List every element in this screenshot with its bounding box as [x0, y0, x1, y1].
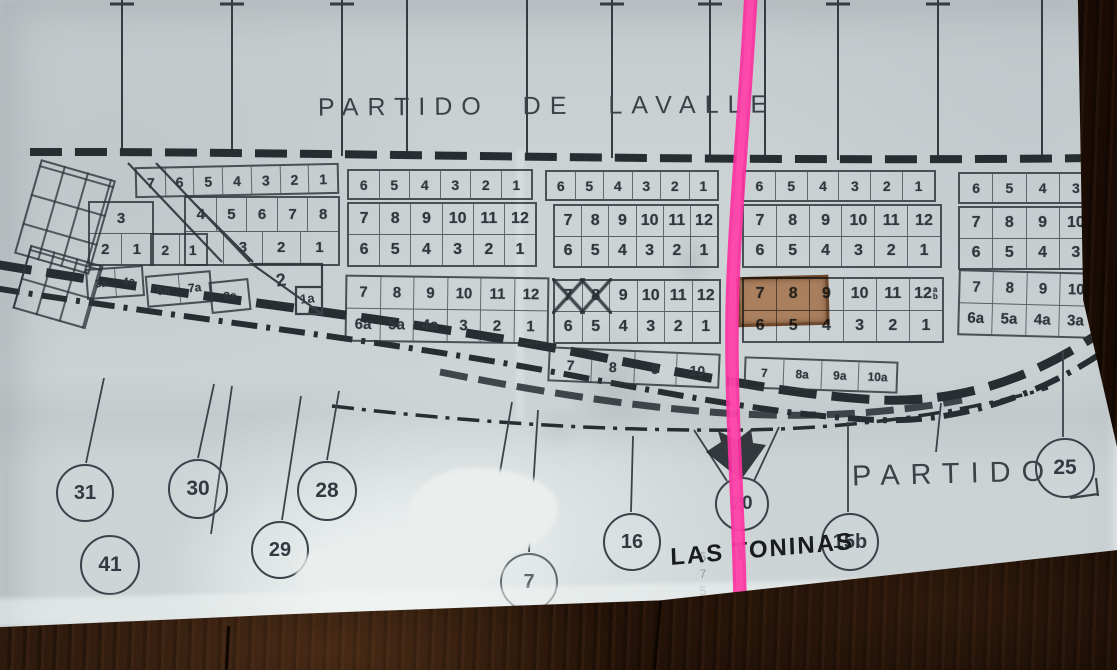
photo-of-cadastral-map: 765432165432165432165432165433212145678·… — [0, 0, 1117, 670]
